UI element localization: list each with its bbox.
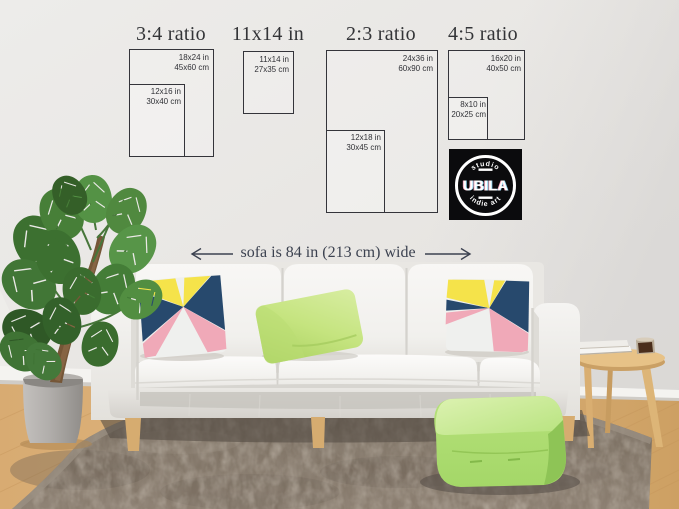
svg-text:UBILA: UBILA [463, 179, 509, 195]
